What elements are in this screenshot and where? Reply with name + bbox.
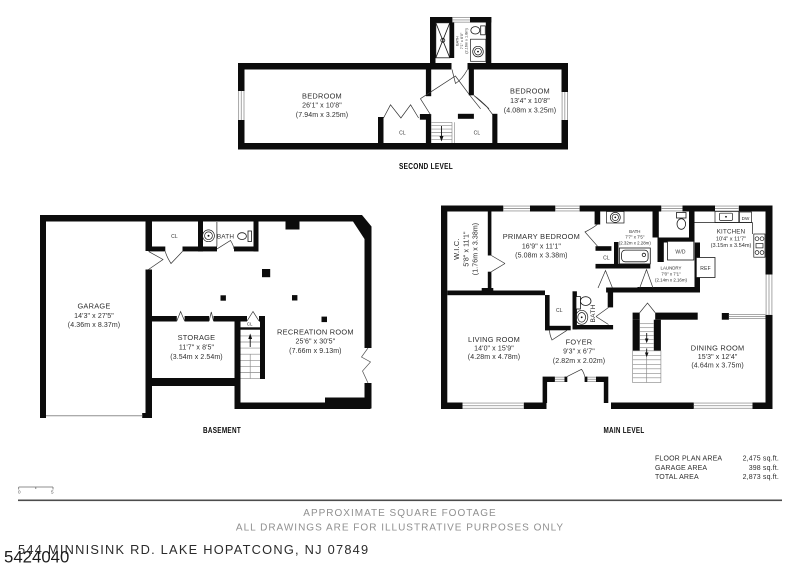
svg-text:14'0" x 15'9": 14'0" x 15'9" (474, 346, 514, 353)
svg-text:REF: REF (700, 266, 711, 272)
svg-text:(4.64m x 3.75m): (4.64m x 3.75m) (691, 363, 743, 370)
svg-text:STORAGE: STORAGE (178, 333, 216, 342)
svg-text:CL: CL (556, 308, 563, 314)
svg-text:14'3" x 27'5": 14'3" x 27'5" (74, 313, 114, 320)
svg-text:KITCHEN: KITCHEN (717, 229, 746, 236)
svg-text:FLOOR PLAN AREA: FLOOR PLAN AREA (655, 456, 722, 463)
svg-text:BATH: BATH (629, 229, 640, 234)
svg-text:MAIN LEVEL: MAIN LEVEL (604, 426, 645, 435)
svg-text:BASEMENT: BASEMENT (203, 426, 241, 435)
svg-text:DINING ROOM: DINING ROOM (691, 344, 745, 353)
svg-text:5424040: 5424040 (4, 548, 69, 565)
svg-text:LAUNDRY: LAUNDRY (661, 266, 682, 271)
svg-text:FOYER: FOYER (566, 337, 593, 346)
svg-text:(4.36m x 8.37m): (4.36m x 8.37m) (68, 322, 120, 329)
svg-text:(1.76m x 3.38m): (1.76m x 3.38m) (473, 223, 480, 275)
svg-text:BATH: BATH (456, 36, 460, 46)
svg-text:CL: CL (603, 256, 610, 262)
svg-text:10'4" x 11'7": 10'4" x 11'7" (716, 236, 746, 242)
svg-text:16'9" x 11'1": 16'9" x 11'1" (522, 243, 562, 250)
svg-text:9'3" x 6'7": 9'3" x 6'7" (563, 348, 595, 355)
svg-text:RECREATION ROOM: RECREATION ROOM (277, 328, 354, 337)
svg-text:TOTAL AREA: TOTAL AREA (655, 474, 699, 481)
svg-text:DW: DW (742, 216, 750, 221)
svg-text:11'7" x 8'5": 11'7" x 8'5" (179, 345, 215, 352)
svg-text:GARAGE AREA: GARAGE AREA (655, 465, 707, 472)
svg-text:2,873 sq.ft.: 2,873 sq.ft. (743, 474, 779, 481)
svg-text:398 sq.ft.: 398 sq.ft. (749, 465, 779, 472)
svg-text:13'4" x 10'8": 13'4" x 10'8" (510, 98, 550, 105)
svg-text:544 MINNISINK RD. LAKE HOPATCO: 544 MINNISINK RD. LAKE HOPATCONG, NJ 078… (18, 542, 369, 557)
svg-text:LIVING ROOM: LIVING ROOM (468, 335, 520, 344)
svg-text:(3.54m x 2.54m): (3.54m x 2.54m) (170, 354, 222, 361)
svg-text:7'7" x 7'5": 7'7" x 7'5" (625, 235, 645, 240)
svg-text:(7.66m x 9.13m): (7.66m x 9.13m) (289, 348, 341, 355)
svg-text:CL: CL (399, 130, 406, 136)
svg-text:26'1" x 10'8": 26'1" x 10'8" (302, 103, 342, 110)
svg-text:(4.08m x 3.25m): (4.08m x 3.25m) (504, 107, 556, 114)
svg-text:2,475 sq.ft.: 2,475 sq.ft. (743, 456, 779, 463)
svg-text:(2.16m x 1.8m): (2.16m x 1.8m) (465, 27, 469, 53)
svg-text:W/D: W/D (675, 250, 686, 256)
svg-text:BEDROOM: BEDROOM (302, 91, 342, 100)
svg-text:PRIMARY BEDROOM: PRIMARY BEDROOM (503, 232, 580, 241)
svg-text:SECOND LEVEL: SECOND LEVEL (399, 162, 453, 171)
svg-text:(3.15m x 3.54m): (3.15m x 3.54m) (711, 243, 752, 249)
svg-text:7'0" x 7'1": 7'0" x 7'1" (661, 272, 681, 277)
svg-text:15'3" x 12'4": 15'3" x 12'4" (698, 354, 738, 361)
svg-text:(5.08m x 3.38m): (5.08m x 3.38m) (515, 253, 567, 260)
svg-text:25'6" x 30'5": 25'6" x 30'5" (296, 339, 336, 346)
svg-text:(2.82m x 2.02m): (2.82m x 2.02m) (553, 358, 605, 365)
svg-text:APPROXIMATE SQUARE FOOTAGE: APPROXIMATE SQUARE FOOTAGE (303, 508, 496, 519)
svg-text:ALL DRAWINGS ARE FOR ILLUSTRAT: ALL DRAWINGS ARE FOR ILLUSTRATIVE PURPOS… (236, 523, 564, 534)
svg-text:0: 0 (18, 490, 21, 495)
svg-text:BATH: BATH (217, 233, 235, 240)
svg-text:W.I.C.: W.I.C. (452, 238, 461, 260)
svg-text:CL: CL (247, 321, 253, 326)
svg-text:7'1" x 6'0": 7'1" x 6'0" (460, 32, 464, 49)
svg-text:(2.14m x 2.16m): (2.14m x 2.16m) (655, 278, 688, 283)
svg-text:5: 5 (51, 490, 54, 495)
svg-text:(2.32m x 2.28m): (2.32m x 2.28m) (619, 240, 652, 245)
svg-text:(7.94m x 3.25m): (7.94m x 3.25m) (296, 112, 348, 119)
svg-text:GARAGE: GARAGE (77, 302, 110, 311)
svg-text:CL: CL (171, 234, 178, 240)
svg-text:5'8" x 11'1": 5'8" x 11'1" (464, 231, 471, 267)
svg-text:BATH: BATH (590, 304, 597, 322)
svg-text:(4.28m x 4.78m): (4.28m x 4.78m) (468, 354, 520, 361)
svg-text:BEDROOM: BEDROOM (510, 87, 550, 96)
svg-text:CL: CL (474, 130, 481, 136)
